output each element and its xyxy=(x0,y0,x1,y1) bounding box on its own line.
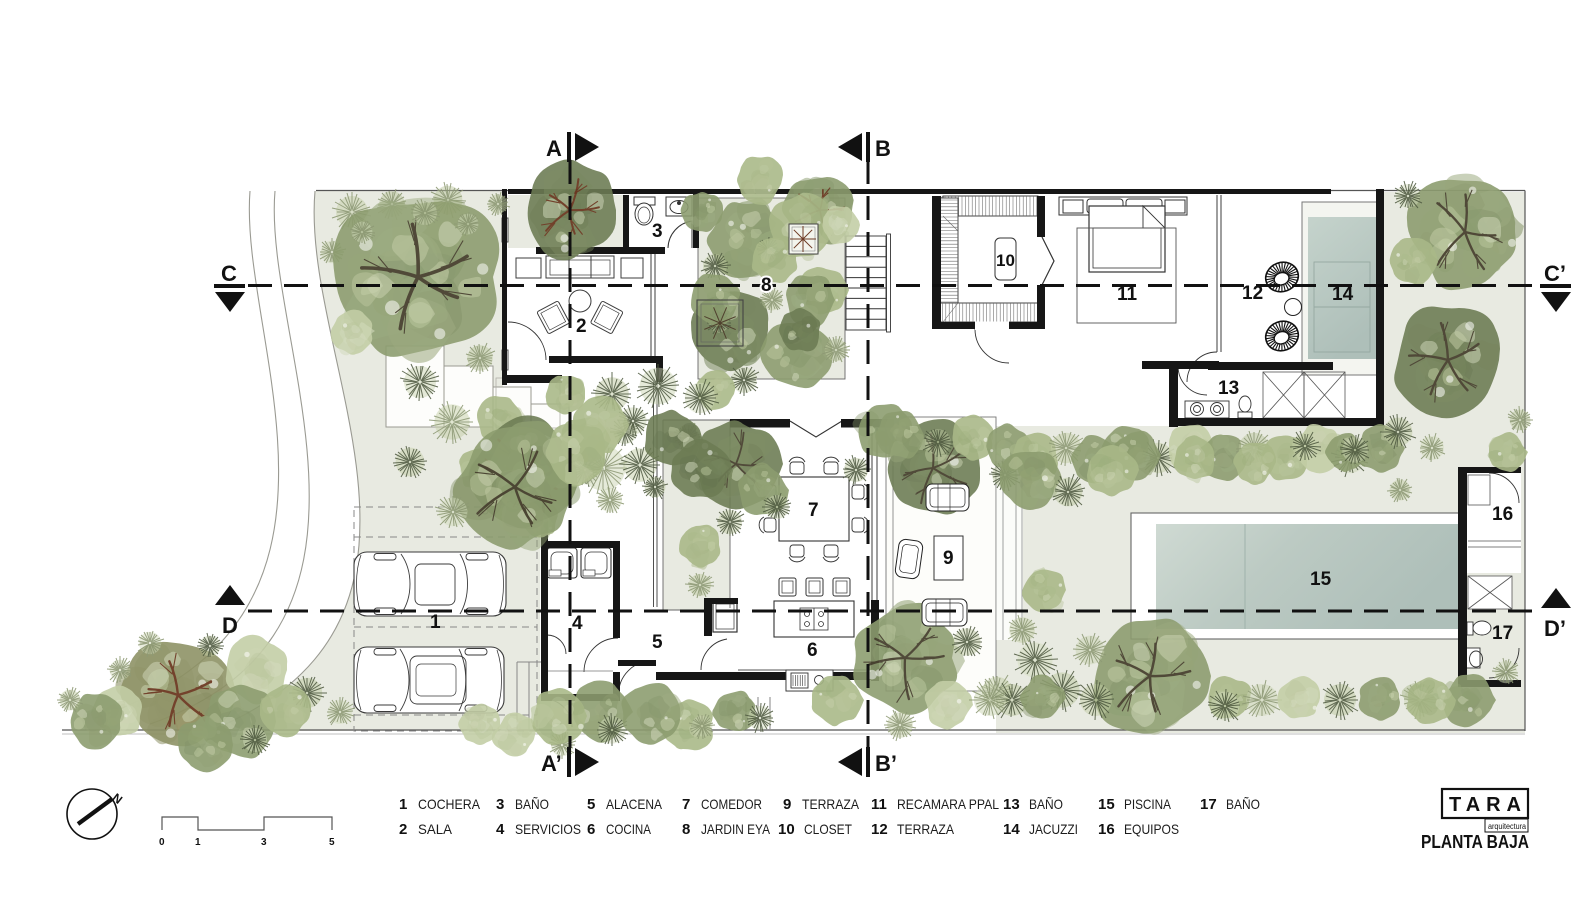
svg-text:0: 0 xyxy=(159,837,165,848)
svg-text:11: 11 xyxy=(871,796,887,813)
svg-text:SERVICIOS: SERVICIOS xyxy=(515,821,581,837)
svg-text:3: 3 xyxy=(652,221,663,242)
svg-text:A: A xyxy=(546,136,562,161)
svg-text:5: 5 xyxy=(329,837,335,848)
svg-text:4: 4 xyxy=(572,613,583,634)
svg-text:COCINA: COCINA xyxy=(606,821,652,837)
svg-text:14: 14 xyxy=(1332,284,1354,305)
svg-text:11: 11 xyxy=(1117,284,1138,305)
svg-text:EQUIPOS: EQUIPOS xyxy=(1124,821,1179,837)
svg-text:1: 1 xyxy=(195,837,201,848)
svg-text:7: 7 xyxy=(682,796,690,813)
svg-text:8: 8 xyxy=(682,821,690,838)
svg-text:RECAMARA PPAL: RECAMARA PPAL xyxy=(897,796,999,812)
svg-text:12: 12 xyxy=(871,821,888,838)
svg-text:16: 16 xyxy=(1492,504,1513,525)
svg-text:7: 7 xyxy=(808,500,819,521)
svg-text:16: 16 xyxy=(1098,821,1115,838)
svg-text:10: 10 xyxy=(996,251,1015,270)
svg-text:15: 15 xyxy=(1098,796,1115,813)
svg-text:17: 17 xyxy=(1492,623,1513,644)
svg-text:15: 15 xyxy=(1310,569,1332,590)
svg-text:COMEDOR: COMEDOR xyxy=(701,796,762,812)
svg-text:6: 6 xyxy=(587,821,595,838)
svg-text:C: C xyxy=(221,261,237,286)
svg-text:CLOSET: CLOSET xyxy=(804,821,852,837)
svg-text:SALA: SALA xyxy=(418,821,453,837)
svg-text:D: D xyxy=(222,613,238,638)
svg-text:6: 6 xyxy=(807,640,818,661)
svg-text:TERRAZA: TERRAZA xyxy=(897,821,955,837)
svg-text:C’: C’ xyxy=(1544,261,1566,286)
svg-text:JACUZZI: JACUZZI xyxy=(1029,821,1078,837)
svg-text:13: 13 xyxy=(1003,796,1020,813)
svg-text:5: 5 xyxy=(652,632,663,653)
svg-text:9: 9 xyxy=(783,796,791,813)
svg-text:3: 3 xyxy=(261,837,267,848)
svg-text:9: 9 xyxy=(943,548,954,569)
svg-text:PISCINA: PISCINA xyxy=(1124,796,1172,812)
svg-text:13: 13 xyxy=(1218,378,1239,399)
svg-text:BAÑO: BAÑO xyxy=(515,796,549,812)
svg-text:JARDIN EYA: JARDIN EYA xyxy=(701,821,771,837)
svg-text:TERRAZA: TERRAZA xyxy=(802,796,860,812)
svg-text:1: 1 xyxy=(430,612,441,633)
svg-text:10: 10 xyxy=(778,821,795,838)
svg-text:4: 4 xyxy=(496,821,505,838)
svg-text:8: 8 xyxy=(761,275,772,296)
svg-text:arquitectura: arquitectura xyxy=(1488,822,1526,831)
svg-text:B: B xyxy=(875,136,891,161)
svg-text:1: 1 xyxy=(399,796,407,813)
svg-text:B’: B’ xyxy=(875,751,897,776)
svg-text:ALACENA: ALACENA xyxy=(606,796,663,812)
svg-text:COCHERA: COCHERA xyxy=(418,796,481,812)
svg-text:3: 3 xyxy=(496,796,504,813)
svg-text:2: 2 xyxy=(399,821,407,838)
svg-text:A’: A’ xyxy=(541,751,562,776)
svg-text:PLANTA BAJA: PLANTA BAJA xyxy=(1421,832,1529,852)
svg-text:14: 14 xyxy=(1003,821,1020,838)
svg-text:BAÑO: BAÑO xyxy=(1226,796,1260,812)
svg-text:2: 2 xyxy=(576,316,587,337)
svg-text:17: 17 xyxy=(1200,796,1217,813)
svg-text:5: 5 xyxy=(587,796,595,813)
svg-text:D’: D’ xyxy=(1544,616,1566,641)
svg-text:BAÑO: BAÑO xyxy=(1029,796,1063,812)
